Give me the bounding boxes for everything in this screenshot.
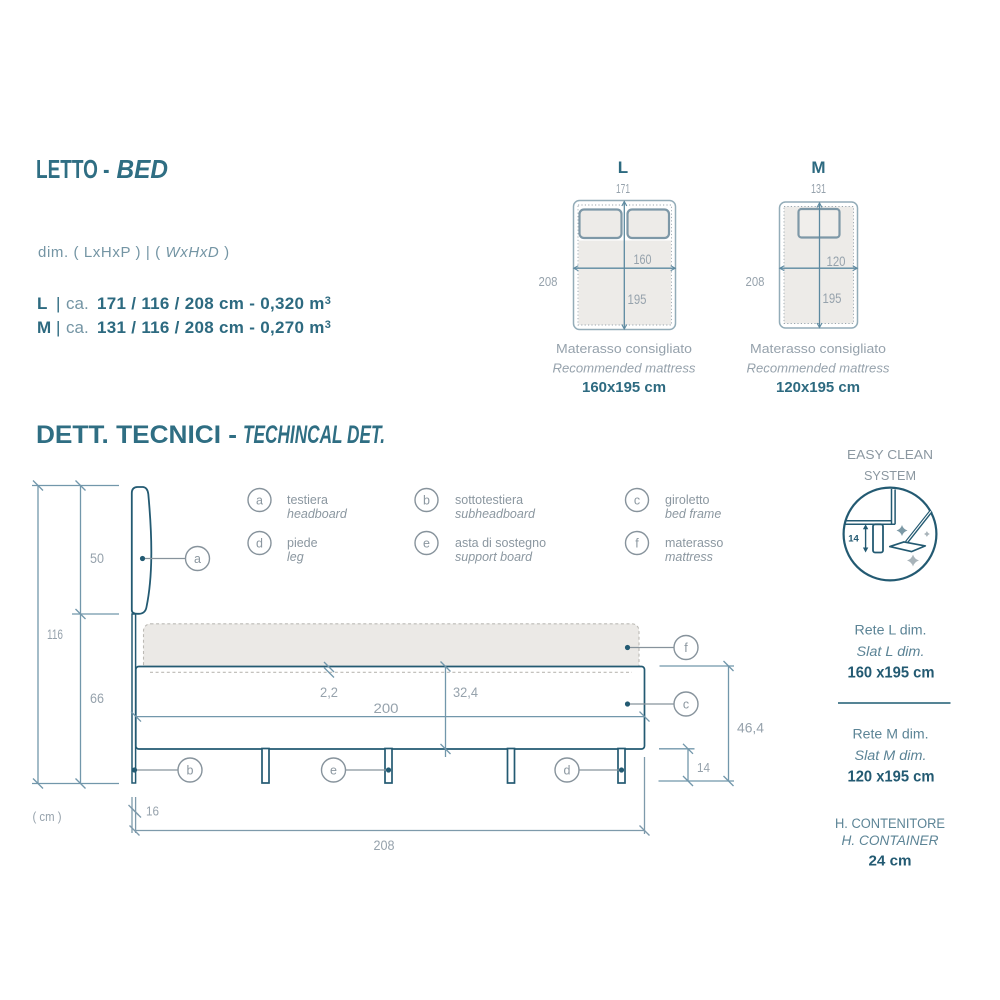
svg-text:BED: BED — [117, 154, 169, 184]
svg-text:giroletto: giroletto — [665, 493, 710, 507]
svg-text:Materasso consigliato: Materasso consigliato — [556, 341, 692, 356]
svg-text:f: f — [635, 537, 639, 551]
svg-text:66: 66 — [90, 691, 104, 706]
svg-text:Rete L dim.: Rete L dim. — [855, 623, 927, 638]
svg-text:120 x195 cm: 120 x195 cm — [848, 769, 935, 786]
svg-text:d: d — [564, 764, 571, 778]
svg-text:b: b — [423, 494, 430, 508]
svg-text:160x195 cm: 160x195 cm — [582, 379, 666, 396]
svg-text:a: a — [256, 494, 263, 508]
svg-text:32,4: 32,4 — [453, 685, 478, 700]
svg-text:120: 120 — [827, 254, 846, 269]
svg-text:e: e — [330, 764, 337, 778]
svg-text:2,2: 2,2 — [320, 685, 338, 700]
svg-text:208: 208 — [539, 274, 558, 289]
svg-text:d: d — [256, 537, 263, 551]
svg-text:f: f — [684, 641, 688, 655]
svg-text:195: 195 — [628, 292, 647, 307]
svg-text:leg: leg — [287, 550, 304, 564]
svg-text:c: c — [683, 698, 689, 712]
svg-text:TECHINCAL DET.: TECHINCAL DET. — [243, 421, 385, 449]
svg-text:c: c — [634, 494, 640, 508]
svg-text:200: 200 — [374, 701, 399, 716]
svg-text:14: 14 — [697, 760, 710, 775]
svg-text:materasso: materasso — [665, 536, 723, 550]
svg-text:Recommended mattress: Recommended mattress — [553, 361, 696, 376]
svg-text:46,4: 46,4 — [737, 721, 764, 736]
svg-text:SYSTEM: SYSTEM — [864, 468, 916, 483]
svg-text:50: 50 — [90, 551, 104, 566]
svg-text:14: 14 — [848, 534, 859, 545]
svg-text:headboard: headboard — [287, 507, 348, 521]
svg-text:Materasso consigliato: Materasso consigliato — [750, 341, 886, 356]
svg-text:support board: support board — [455, 550, 533, 564]
svg-text:asta di sostegno: asta di sostegno — [455, 536, 546, 550]
svg-text:24 cm: 24 cm — [869, 853, 912, 870]
svg-text:Recommended mattress: Recommended mattress — [747, 361, 890, 376]
svg-text:171: 171 — [616, 181, 630, 196]
svg-text:testiera: testiera — [287, 493, 328, 507]
svg-text:116: 116 — [47, 627, 63, 642]
svg-text:b: b — [187, 764, 194, 778]
svg-text:M|ca.131 / 116 / 208 cm - 0,27: M|ca.131 / 116 / 208 cm - 0,270 m3 — [37, 318, 331, 337]
svg-text:131: 131 — [811, 181, 826, 196]
svg-text:( cm ): ( cm ) — [33, 810, 62, 824]
svg-text:Slat M dim.: Slat M dim. — [855, 748, 927, 763]
svg-text:L|ca.171 / 116 / 208 cm - 0,32: L|ca.171 / 116 / 208 cm - 0,320 m3 — [37, 294, 331, 313]
svg-text:mattress: mattress — [665, 550, 713, 564]
svg-text:a: a — [194, 552, 201, 566]
svg-text:16: 16 — [146, 804, 159, 819]
svg-text:dim. ( LxHxP ) | ( WxHxD ): dim. ( LxHxP ) | ( WxHxD ) — [38, 244, 230, 261]
svg-text:H. CONTENITORE: H. CONTENITORE — [835, 816, 945, 831]
svg-text:120x195 cm: 120x195 cm — [776, 379, 860, 396]
svg-text:Slat L dim.: Slat L dim. — [857, 644, 925, 659]
svg-text:LETTO -: LETTO - — [36, 154, 110, 184]
svg-text:DETT. TECNICI -: DETT. TECNICI - — [36, 421, 237, 449]
svg-text:160: 160 — [634, 252, 652, 267]
svg-text:195: 195 — [823, 291, 842, 306]
svg-text:H. CONTAINER: H. CONTAINER — [842, 833, 939, 848]
svg-text:208: 208 — [374, 838, 395, 853]
svg-text:bed frame: bed frame — [665, 507, 721, 521]
svg-text:Rete M dim.: Rete M dim. — [853, 727, 929, 742]
svg-text:piede: piede — [287, 536, 318, 550]
svg-text:160 x195 cm: 160 x195 cm — [848, 665, 935, 682]
svg-text:M: M — [811, 158, 825, 177]
svg-text:208: 208 — [746, 274, 765, 289]
svg-text:L: L — [618, 158, 628, 177]
svg-text:subheadboard: subheadboard — [455, 507, 536, 521]
svg-text:sottotestiera: sottotestiera — [455, 493, 523, 507]
svg-text:EASY CLEAN: EASY CLEAN — [847, 447, 933, 462]
svg-text:e: e — [423, 537, 430, 551]
